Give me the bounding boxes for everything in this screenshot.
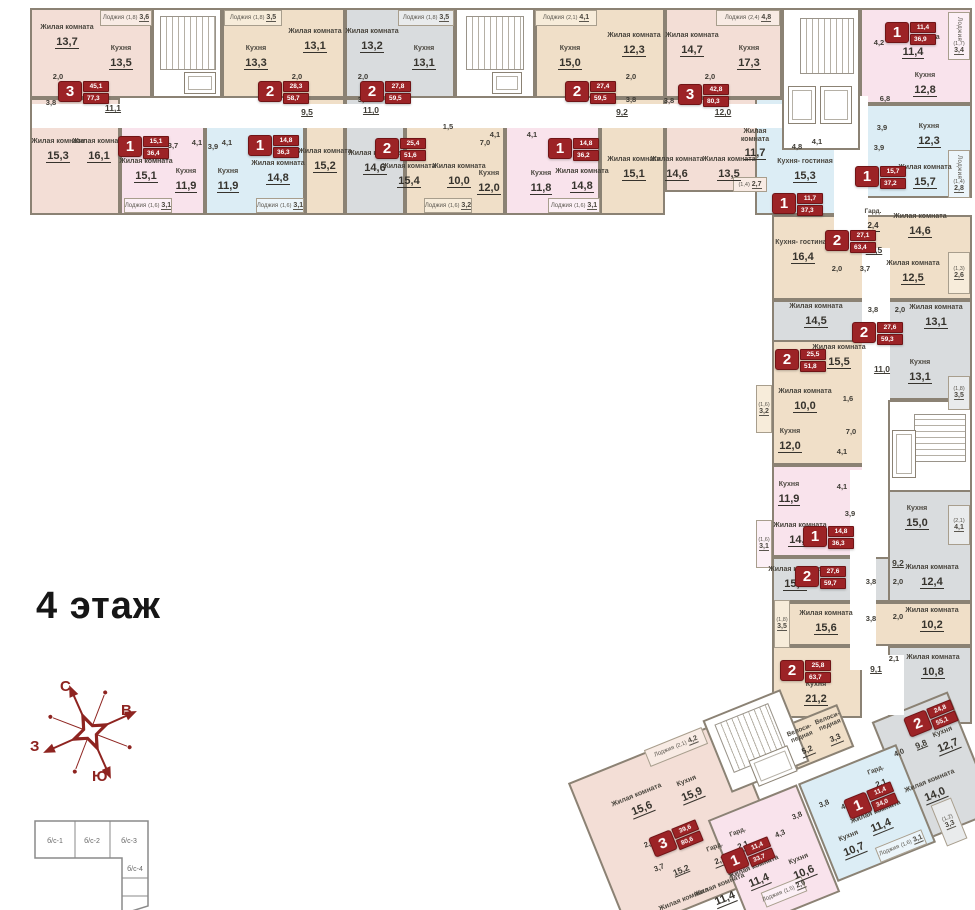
loggia: Лоджия(1,8)3,6 (100, 10, 152, 26)
loggia: (2,1)4,1 (948, 505, 970, 545)
apartment-badge: 111,436,9 (885, 22, 936, 43)
loggia: (1,8)3,5 (774, 600, 790, 648)
room-label: Кухня13,1 (396, 45, 452, 70)
keyplan-section-4: б/с-4 (127, 865, 143, 873)
room-label: Кухня- гостиная16,4 (775, 239, 831, 264)
apartment-badge: 225,451,6 (375, 138, 426, 159)
key-plan: б/с-1 б/с-2 б/с-3 б/с-4 (25, 816, 165, 910)
room-label: Кухня12,3 (901, 123, 957, 148)
loggia: (1,6)3,2 (756, 385, 772, 433)
apartment-badge: 114,836,3 (248, 135, 299, 156)
elevator-icon (892, 430, 916, 478)
stairs-icon (466, 16, 524, 70)
room-label: Кухня13,5 (93, 45, 149, 70)
loggia: Лоджия(1,6)3,1 (548, 198, 600, 213)
room-label: Жилая комната13,1 (287, 28, 343, 53)
stairs-icon (914, 414, 966, 462)
room-label: Кухня12,0 (762, 428, 818, 453)
elevator-icon (788, 86, 816, 124)
room-label: Жилая комната12,3 (606, 32, 662, 57)
room-label: Кухня11,9 (761, 481, 817, 506)
corridor (850, 470, 876, 670)
area-number: 2,0 (47, 72, 69, 81)
keyplan-section-3: б/с-3 (121, 837, 137, 845)
apartment-badge: 225,551,8 (775, 349, 826, 370)
room-label: Кухня12,0 (461, 170, 517, 195)
apartment-badge: 115,737,2 (855, 166, 906, 187)
apartment-badge: 115,136,4 (118, 136, 169, 157)
elevator-icon (492, 72, 522, 94)
room-label: Жилая комната15,4 (381, 163, 437, 188)
loggia: Лоджия(2,1)4,1 (535, 10, 597, 26)
room-label: Кухня12,8 (897, 72, 953, 97)
page-title: 4 этаж (36, 585, 161, 628)
loggia: Лоджия(1,8)3,5 (224, 10, 282, 26)
loggia: Лоджия(1,6)3,1 (124, 198, 172, 213)
apartment-badge: 345,177,3 (58, 81, 109, 102)
room-label: Кухня13,3 (228, 45, 284, 70)
stairs-icon (160, 16, 216, 70)
compass-south: Ю (92, 768, 107, 785)
compass-east: В (121, 702, 132, 719)
apartment-badge: 114,836,3 (803, 526, 854, 547)
room-label: Кухня15,0 (542, 45, 598, 70)
room-label: Жилая комната13,2 (344, 28, 400, 53)
room-label: Кухня17,3 (721, 45, 777, 70)
room-label: Жилая комната12,4 (904, 564, 960, 589)
compass-west: З (30, 738, 39, 755)
room-label: Жилая комната14,6 (892, 213, 948, 238)
elevator-icon (184, 72, 216, 94)
room-label: Жилая комната13,7 (39, 24, 95, 49)
loggia: (1,8)3,5 (948, 376, 970, 410)
room-label: Жилая комната14,8 (554, 168, 610, 193)
apartment-badge: 114,836,2 (548, 138, 599, 159)
loggia: Лоджия(1,6)3,2 (424, 198, 472, 213)
apartment-badge: 111,737,3 (772, 193, 823, 214)
room-label: Жилая комната10,2 (904, 607, 960, 632)
room-label: Кухня13,1 (892, 359, 948, 384)
loggia: Лоджия(2,4)4,8 (716, 10, 780, 26)
apartment-badge: 342,880,3 (678, 84, 729, 105)
room-label: Кухня11,9 (200, 168, 256, 193)
loggia-label: Лоджия (103, 15, 124, 21)
stairs-icon (800, 18, 854, 74)
apartment-badge: 228,358,7 (258, 81, 309, 102)
keyplan-section-1: б/с-1 (47, 837, 63, 845)
loggia: Лоджия(1,8)3,5 (398, 10, 454, 26)
loggia: Лоджия(1,7)3,4 (948, 12, 970, 60)
room-label: Жилая комната12,5 (885, 260, 941, 285)
room-label: Жилая комната10,0 (777, 388, 833, 413)
apartment-badge: 227,459,5 (565, 81, 616, 102)
room-label: Жилая комната11,7 (731, 128, 779, 161)
room-label: Жилая комната10,8 (905, 654, 961, 679)
loggia: Лоджия(1,6)3,1 (256, 198, 304, 213)
room-label: Жилая комната13,1 (908, 304, 964, 329)
elevator-icon (820, 86, 852, 124)
room-label: Жилая комната14,6 (649, 156, 705, 181)
room-label: Жилая комната14,7 (664, 32, 720, 57)
keyplan-section-2: б/с-2 (84, 837, 100, 845)
apartment-badge: 227,859,5 (360, 81, 411, 102)
room-label: Жилая комната14,5 (788, 303, 844, 328)
room-label: Жилая комната15,6 (798, 610, 854, 635)
apartment-badge: 225,863,7 (780, 660, 831, 681)
apartment-badge: 227,659,3 (852, 322, 903, 343)
loggia: (1,6)3,1 (756, 520, 772, 568)
room-label: Кухня21,2 (788, 681, 844, 706)
loggia: (1,3)2,6 (948, 252, 970, 294)
apartment-badge: 227,163,4 (825, 230, 876, 251)
room-label: Кухня- гостиная15,3 (777, 158, 833, 183)
apartment-badge: 227,659,7 (795, 566, 846, 587)
room-label: Кухня15,0 (889, 505, 945, 530)
compass-north: С (60, 678, 71, 695)
floor-plan: Лоджия(1,8)3,6 Лоджия(1,8)3,5 Лоджия(1,8… (0, 0, 975, 910)
room-label: Жилая комната15,2 (297, 148, 353, 173)
